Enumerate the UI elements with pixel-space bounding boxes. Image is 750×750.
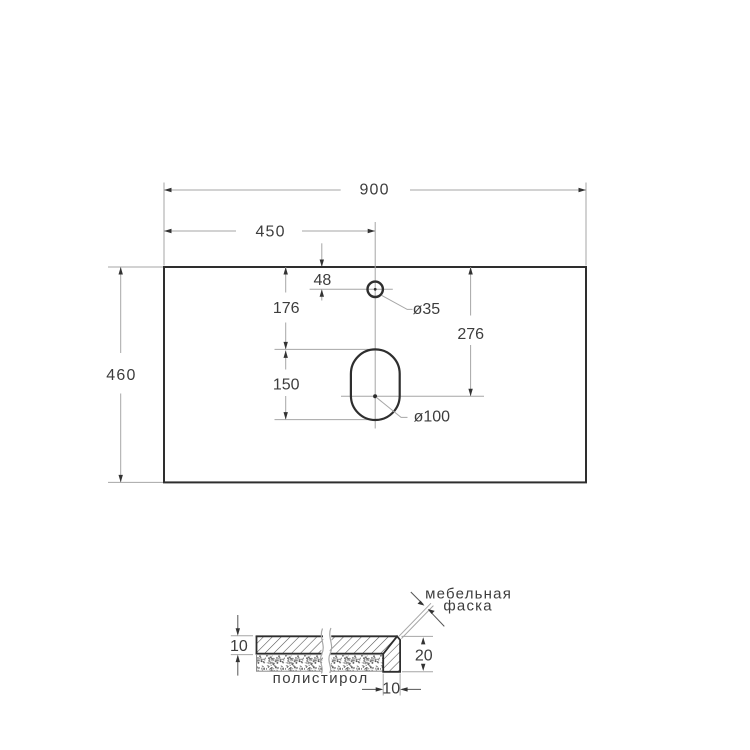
- svg-text:460: 460: [106, 367, 136, 384]
- svg-text:ø35: ø35: [413, 301, 441, 318]
- svg-text:10: 10: [382, 681, 400, 698]
- svg-text:20: 20: [415, 647, 433, 664]
- svg-text:450: 450: [255, 224, 285, 241]
- svg-text:48: 48: [314, 272, 332, 289]
- svg-text:276: 276: [457, 326, 484, 343]
- svg-text:150: 150: [273, 377, 300, 394]
- svg-text:10: 10: [230, 638, 248, 655]
- svg-text:176: 176: [273, 300, 300, 317]
- svg-text:ø100: ø100: [414, 409, 451, 426]
- svg-text:900: 900: [359, 182, 389, 199]
- svg-text:фаска: фаска: [443, 597, 492, 614]
- svg-text:полистирол: полистирол: [273, 670, 369, 687]
